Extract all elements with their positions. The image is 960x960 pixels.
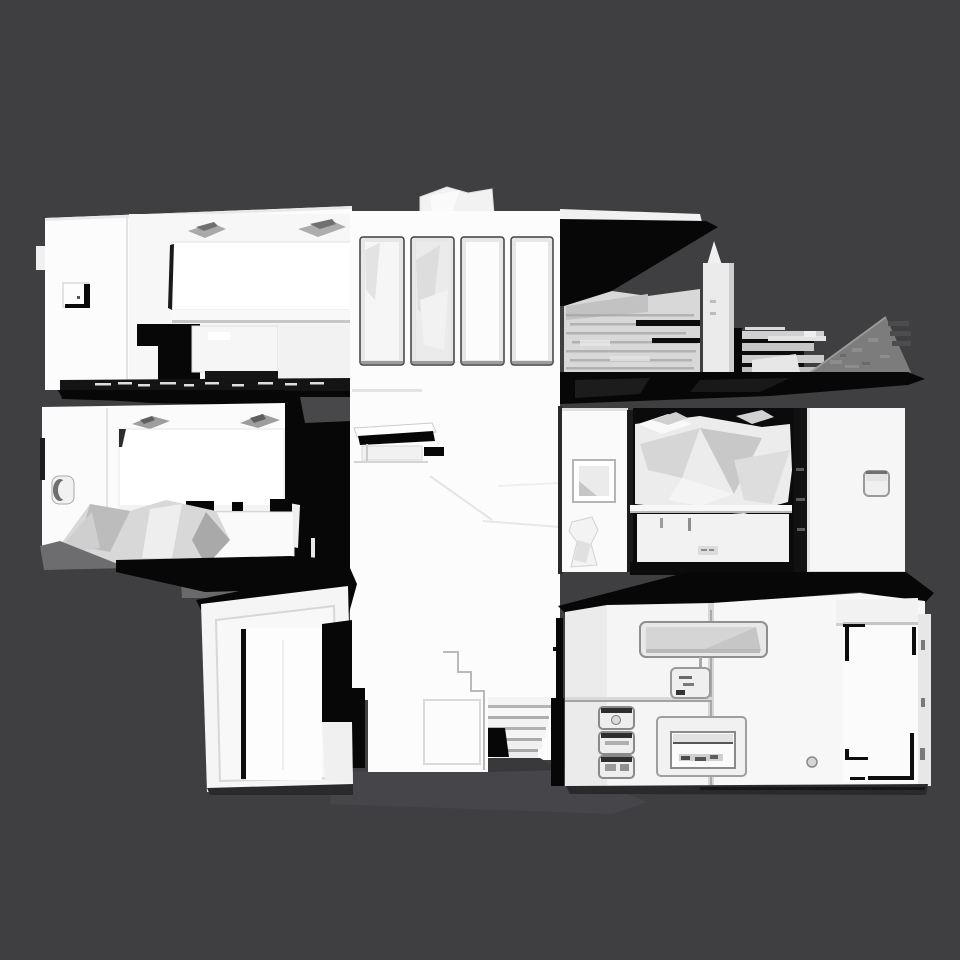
pane-facet [420,290,448,350]
niche-shade [646,649,760,653]
cabinet-bracket [660,518,663,528]
outlet-dot [77,296,80,299]
wall-highlight [580,340,610,346]
window-sill [461,361,504,364]
tread-gap [488,705,552,708]
appliance-wave [605,741,629,745]
handle-crescent-mask [58,480,72,500]
gap-ceiling [300,397,352,423]
shelf-notch [424,447,444,456]
wall-slit [636,320,700,326]
window-pane [516,242,548,360]
window-pane [466,242,499,360]
cabinet [192,326,278,372]
fixture-notch [676,690,685,695]
wall-slit [652,338,700,343]
railing-bar [768,336,826,341]
sawtooth-stripe [888,321,909,326]
appliance-stack [599,707,634,778]
stair-tread [488,719,549,727]
floor-line [352,389,422,392]
appliance-knob [612,716,621,725]
jamb-streak [796,498,805,501]
wall-seam [126,216,128,388]
counter-underline [630,511,792,513]
door-jamb-shadow [794,408,807,574]
headboard-panel [119,429,284,507]
upper-left-bedroom [36,206,352,391]
doorway-shadow [322,620,352,722]
chimney-detail [710,300,716,303]
door-crease [282,640,284,770]
headboard-panel [172,242,352,310]
hatch-mark [681,756,690,760]
shelf-lower [362,446,422,460]
outlet-shadow [65,304,86,308]
railing-rod [745,327,785,330]
cabinet-bracket [688,518,691,531]
base-line [700,787,925,790]
render-viewport[interactable] [0,0,960,960]
wall-top-edge [562,408,628,411]
divider-edge [565,700,712,702]
chimney-shade [729,263,734,381]
tower-base-seam [551,698,564,786]
railing-knob [804,331,816,337]
appliance-top-band [601,757,632,762]
lower-right-utility [558,572,934,795]
shadow-pocket [232,502,243,511]
window-sill [511,361,553,364]
label-dash [709,549,714,551]
tower-right-seam-lower [556,618,563,700]
tread-gap [488,716,549,719]
sawtooth-stripe [892,341,911,346]
hatch-mark [710,755,718,759]
chimney-detail [710,312,716,315]
gap-shadow-column [285,396,352,576]
label-dash [701,549,707,551]
shelf-edge [354,461,428,463]
fixture-mark [679,676,692,679]
hatch-band [673,734,733,743]
wall-tab [36,246,45,270]
sawtooth-stripe [890,331,911,336]
hatch-band-line [673,742,733,744]
fixture-mark [683,683,694,686]
appliance-mark [605,764,616,771]
wall-seam-shadow [627,410,633,572]
jamb-streak [796,468,804,471]
lower-left-entry [196,568,357,795]
middle-right-room [562,408,905,575]
shadow-pocket [270,499,292,512]
door [807,408,905,574]
appliance-top-band [601,733,632,738]
center-tower [340,187,564,786]
switch-lid [866,473,887,481]
counter-edge [630,505,792,511]
ledge [172,310,352,321]
stair-tread [488,697,555,705]
shelf-side [366,444,368,461]
jamb-streak [797,528,805,531]
switch-lid-edge [866,471,887,474]
wall-highlight [610,356,650,361]
cabinet-top [208,332,230,340]
door-edge [807,408,810,574]
wall-patch [278,324,352,382]
appliance-mark [620,764,629,771]
handle-dot [807,757,817,767]
hatch-mark [695,757,706,761]
ledge-underline [172,320,352,323]
window-sill [411,361,454,364]
window-sill [360,361,404,364]
wall-patch [322,722,353,784]
middle-left-bedroom [40,390,352,598]
door-gap-shadow [241,629,246,779]
stair-tread [488,708,552,716]
appliance-top-band [601,708,632,713]
door-sill [836,598,918,626]
wall-edge-shadow [40,438,45,480]
